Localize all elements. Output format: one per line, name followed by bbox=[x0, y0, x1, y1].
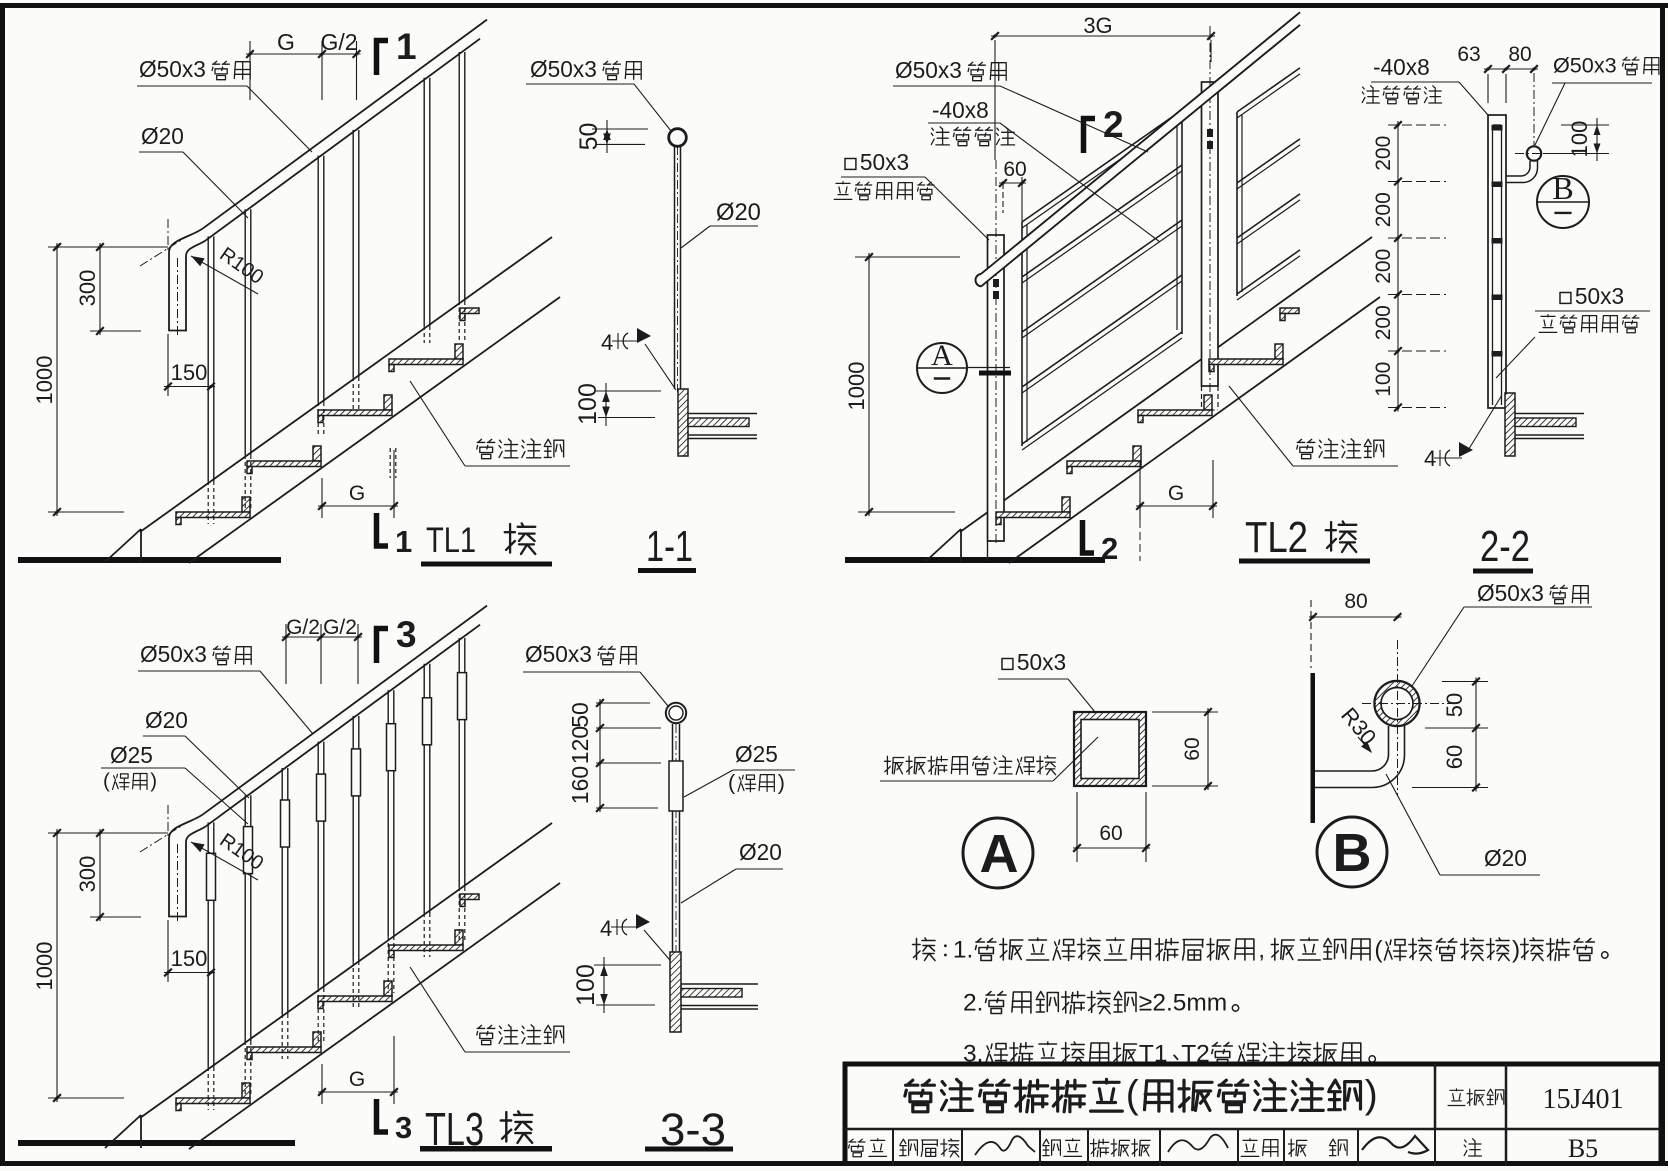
svg-text:TL1: TL1 bbox=[426, 521, 476, 560]
svg-text:1.: 1. bbox=[953, 937, 973, 964]
svg-text:100: 100 bbox=[574, 383, 602, 425]
svg-text:(: ( bbox=[103, 770, 110, 793]
svg-text:Ø25: Ø25 bbox=[735, 741, 778, 767]
svg-text:1000: 1000 bbox=[844, 362, 869, 411]
svg-text:G: G bbox=[1168, 482, 1184, 505]
svg-text:B: B bbox=[1552, 170, 1573, 206]
svg-text:100: 100 bbox=[1372, 362, 1395, 397]
svg-text:G: G bbox=[349, 482, 365, 505]
svg-text:120: 120 bbox=[567, 726, 593, 764]
svg-text:-40x8: -40x8 bbox=[932, 97, 989, 123]
svg-text:3: 3 bbox=[396, 614, 417, 655]
svg-text:G: G bbox=[349, 1068, 365, 1091]
svg-text:-40x8: -40x8 bbox=[1373, 54, 1430, 80]
svg-text:Ø50x3: Ø50x3 bbox=[895, 57, 962, 83]
svg-text:Ø20: Ø20 bbox=[145, 707, 188, 733]
svg-text:): ) bbox=[1512, 937, 1520, 964]
svg-text:300: 300 bbox=[75, 856, 100, 893]
svg-text:60: 60 bbox=[1003, 158, 1026, 181]
svg-text:80: 80 bbox=[1344, 590, 1367, 613]
svg-text:2: 2 bbox=[1103, 104, 1124, 145]
svg-text:3: 3 bbox=[395, 1110, 412, 1145]
svg-text:G/2: G/2 bbox=[320, 29, 357, 55]
svg-text:G/2: G/2 bbox=[323, 616, 357, 639]
svg-text:,: , bbox=[1258, 937, 1265, 964]
svg-text:≥2.5mm: ≥2.5mm bbox=[1139, 990, 1227, 1017]
svg-text:1000: 1000 bbox=[32, 356, 57, 405]
svg-text:2-2: 2-2 bbox=[1480, 522, 1530, 571]
svg-text:300: 300 bbox=[75, 270, 100, 307]
svg-text:200: 200 bbox=[1372, 192, 1395, 227]
svg-text:(: ( bbox=[1374, 937, 1383, 964]
svg-text:150: 150 bbox=[171, 360, 208, 385]
svg-text:B: B bbox=[1333, 823, 1372, 883]
svg-text:60: 60 bbox=[1442, 745, 1467, 769]
svg-text:): ) bbox=[778, 769, 785, 794]
svg-text:G/2: G/2 bbox=[286, 616, 320, 639]
svg-text:Ø50x3: Ø50x3 bbox=[530, 56, 597, 82]
svg-text:1-1: 1-1 bbox=[646, 522, 693, 571]
svg-text:4: 4 bbox=[600, 916, 612, 941]
svg-text:Ø50x3: Ø50x3 bbox=[525, 641, 592, 667]
svg-text:50x3: 50x3 bbox=[1017, 649, 1066, 675]
svg-text:B5: B5 bbox=[1568, 1134, 1598, 1163]
svg-text:63: 63 bbox=[1457, 43, 1480, 66]
svg-text:Ø20: Ø20 bbox=[739, 839, 782, 865]
svg-text:50: 50 bbox=[1442, 693, 1467, 717]
svg-text:4: 4 bbox=[601, 330, 613, 355]
svg-text:3G: 3G bbox=[1083, 13, 1112, 38]
svg-text:Ø50x3: Ø50x3 bbox=[139, 56, 206, 82]
svg-text:1: 1 bbox=[396, 26, 417, 67]
svg-text:1: 1 bbox=[395, 524, 412, 559]
svg-text:100: 100 bbox=[572, 964, 600, 1006]
svg-text:Ø20: Ø20 bbox=[1484, 845, 1527, 871]
svg-text:160: 160 bbox=[567, 766, 593, 804]
svg-text:50x3: 50x3 bbox=[860, 149, 909, 175]
svg-text:200: 200 bbox=[1372, 136, 1395, 171]
svg-text:80: 80 bbox=[1508, 43, 1531, 66]
svg-text:100: 100 bbox=[1567, 121, 1592, 158]
svg-text:Ø50x3: Ø50x3 bbox=[1477, 580, 1544, 606]
svg-text:A: A bbox=[980, 824, 1019, 884]
svg-text:G: G bbox=[277, 29, 295, 55]
svg-text:TL2: TL2 bbox=[1245, 513, 1308, 562]
svg-text:50x3: 50x3 bbox=[1575, 283, 1624, 309]
svg-text:1000: 1000 bbox=[32, 942, 57, 991]
svg-text:Ø25: Ø25 bbox=[110, 742, 153, 768]
svg-text:200: 200 bbox=[1372, 249, 1395, 284]
svg-text:50: 50 bbox=[567, 702, 593, 728]
svg-text:50: 50 bbox=[575, 123, 603, 151]
svg-text:A: A bbox=[931, 339, 953, 372]
svg-text:60: 60 bbox=[1099, 822, 1122, 845]
svg-text:15J401: 15J401 bbox=[1543, 1084, 1624, 1115]
svg-text:Ø50x3: Ø50x3 bbox=[1553, 52, 1617, 77]
svg-text:Ø20: Ø20 bbox=[716, 199, 761, 226]
svg-text:): ) bbox=[150, 770, 157, 793]
svg-text:200: 200 bbox=[1372, 305, 1395, 340]
svg-text:2.: 2. bbox=[963, 990, 983, 1017]
svg-text:Ø20: Ø20 bbox=[141, 123, 184, 149]
svg-text:): ) bbox=[1365, 1074, 1378, 1117]
svg-text:Ø50x3: Ø50x3 bbox=[140, 641, 207, 667]
svg-text:60: 60 bbox=[1181, 737, 1204, 760]
svg-text:(: ( bbox=[728, 769, 736, 794]
svg-text:(: ( bbox=[1126, 1074, 1139, 1117]
svg-text:150: 150 bbox=[171, 946, 208, 971]
svg-text:2: 2 bbox=[1101, 531, 1118, 566]
